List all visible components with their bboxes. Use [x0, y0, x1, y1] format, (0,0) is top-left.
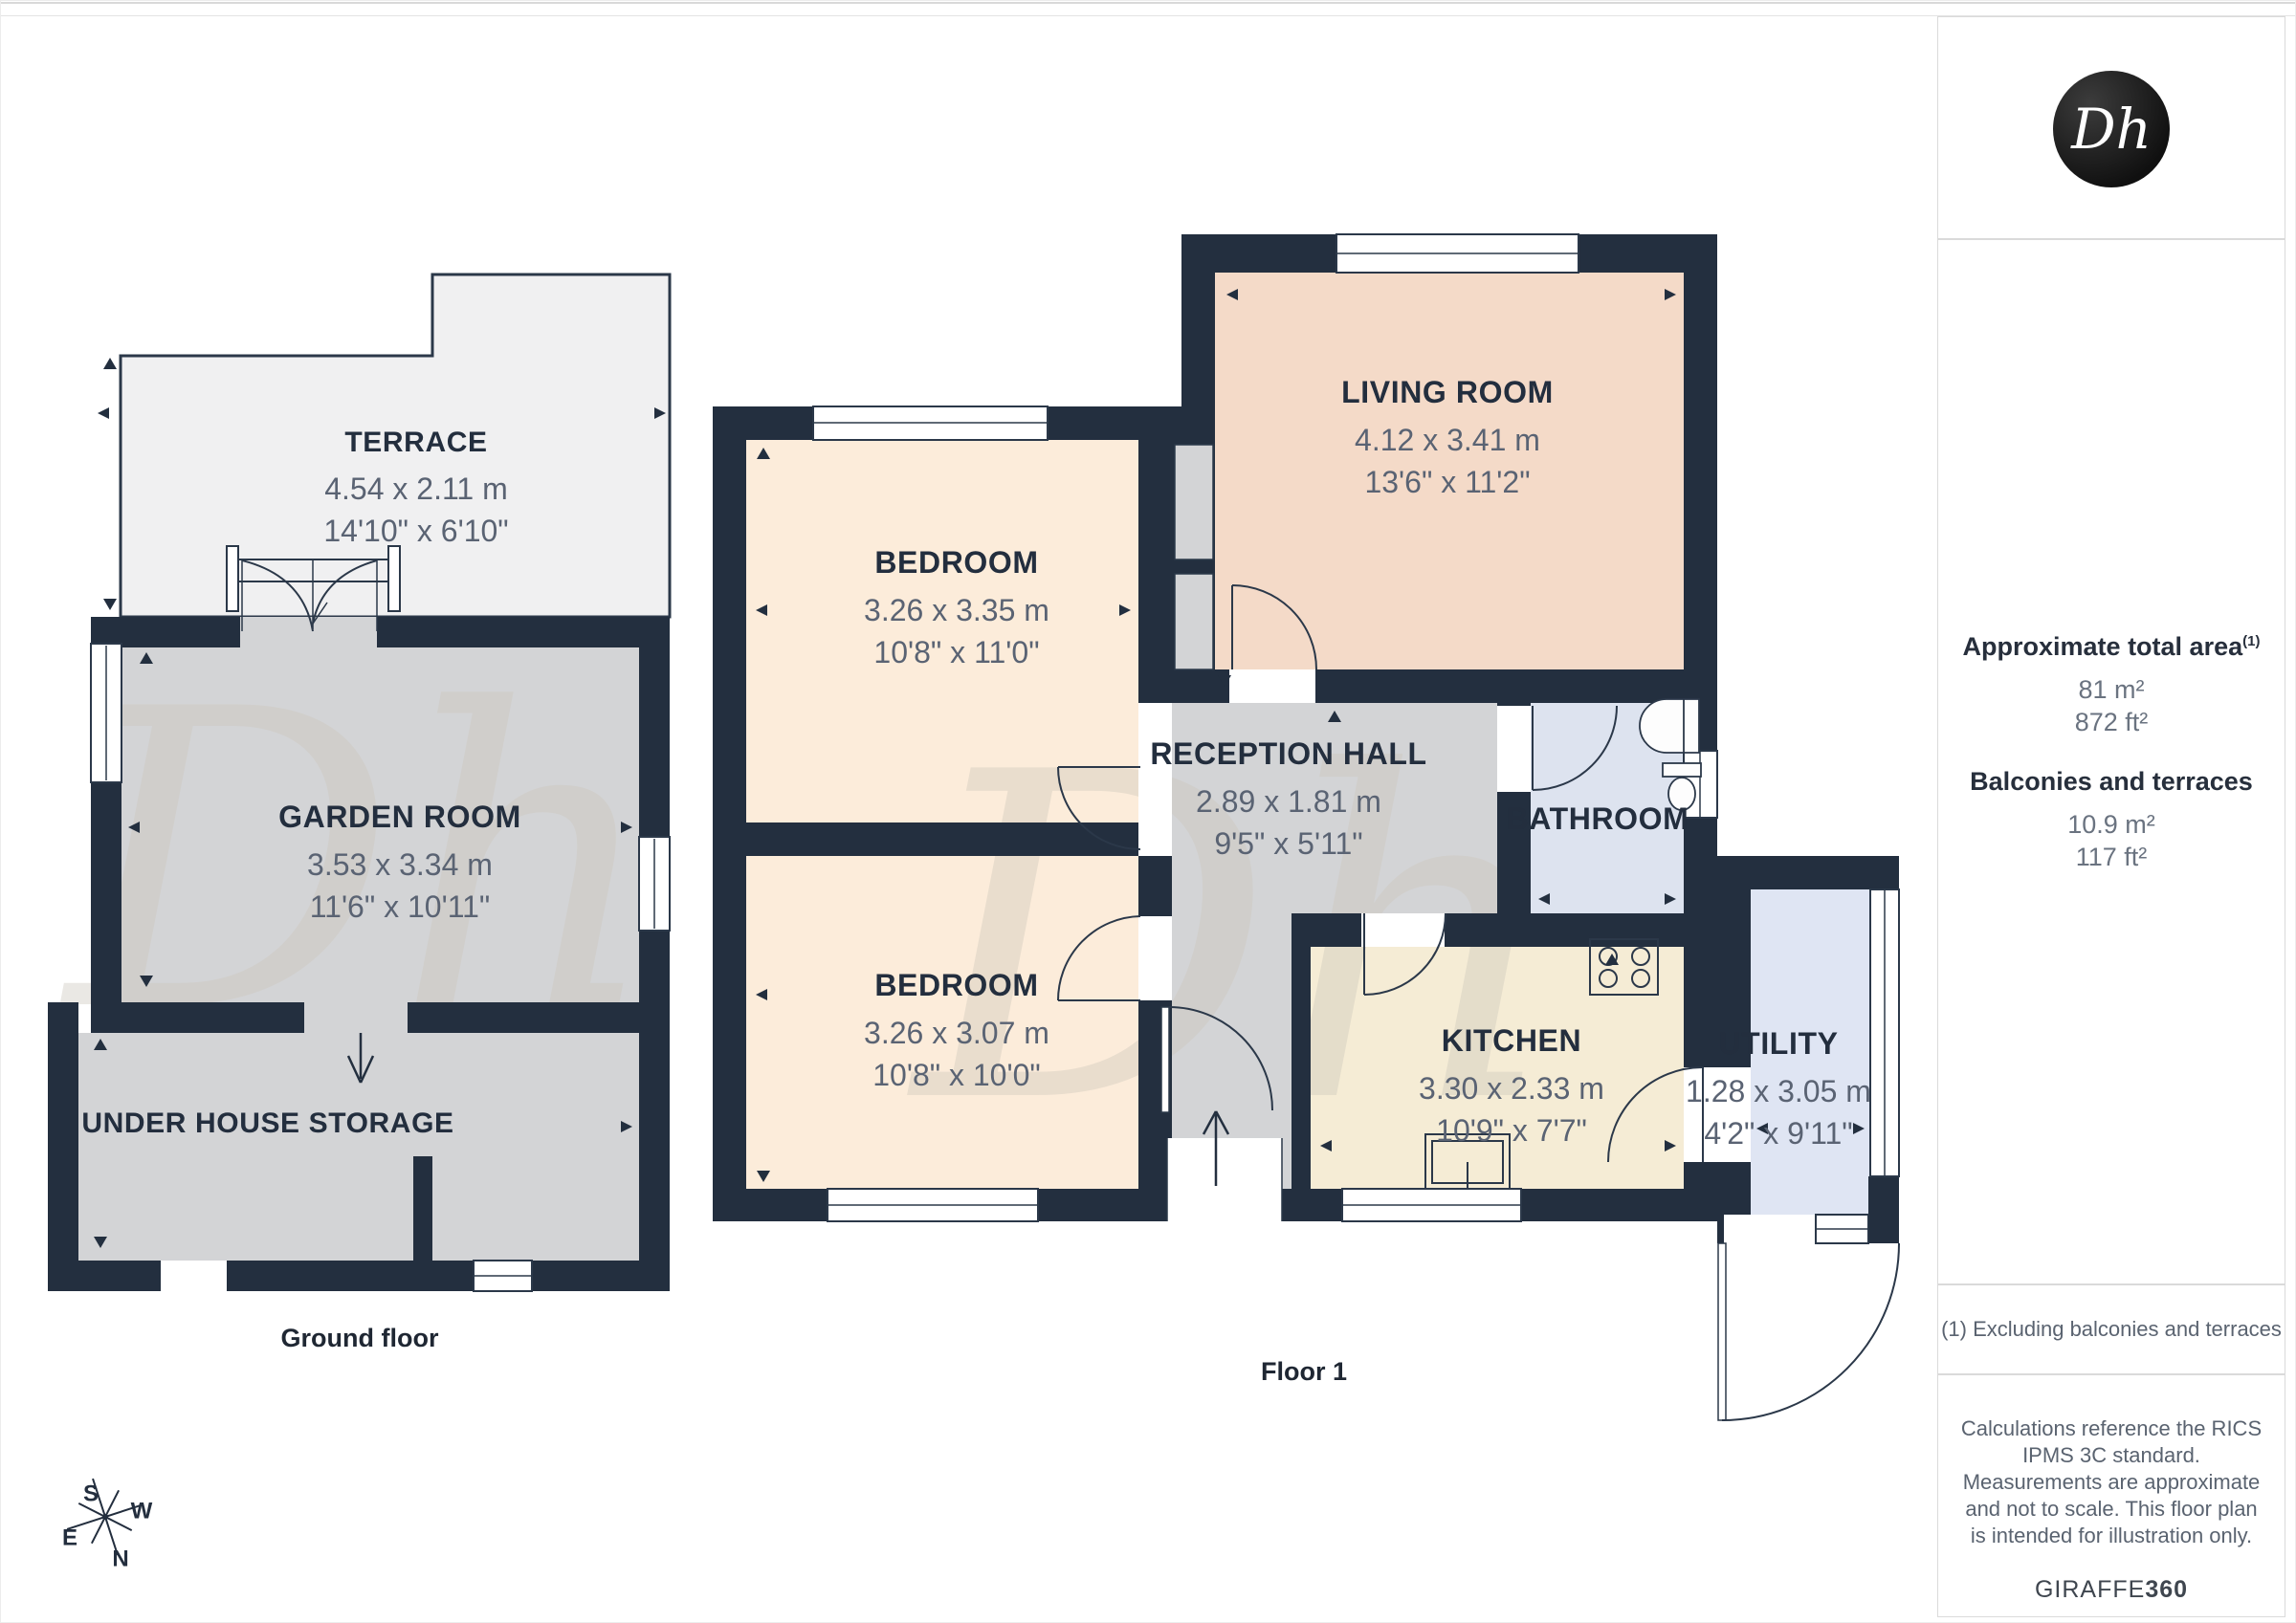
room-dim-metric: 2.89 x 1.81 m	[1150, 780, 1426, 822]
room-name: BEDROOM	[864, 968, 1049, 1003]
agency-logo: Dh	[2053, 71, 2170, 187]
room-name: LIVING ROOM	[1341, 375, 1554, 410]
room-name: GARDEN ROOM	[278, 800, 521, 835]
area-summary-box: Approximate total area(1) 81 m² 872 ft² …	[1937, 239, 2285, 1284]
room-name: TERRACE	[323, 427, 508, 459]
room-dim-imperial: 13'6" x 11'2"	[1341, 461, 1554, 503]
alcoves	[1175, 445, 1213, 669]
floorplan-first: Dh	[708, 230, 1913, 1492]
room-label-storage: UNDER HOUSE STORAGE	[81, 1108, 453, 1149]
caption-floor-1: Floor 1	[1261, 1357, 1347, 1387]
room-dim-metric: 3.26 x 3.07 m	[864, 1012, 1049, 1054]
compass-south: S	[83, 1481, 99, 1507]
room-dim-metric: 1.28 x 3.05 m	[1686, 1070, 1871, 1112]
room-dim-imperial: 9'5" x 5'11"	[1150, 822, 1426, 865]
room-name: BEDROOM	[864, 545, 1049, 581]
room-label-bedroom-a: BEDROOM 3.26 x 3.35 m 10'8" x 11'0"	[864, 545, 1049, 673]
total-area-imperial: 872 ft²	[1938, 706, 2285, 738]
caption-ground-floor: Ground floor	[281, 1324, 439, 1353]
compass-icon: S W E N	[36, 1452, 180, 1595]
room-dim-imperial: 10'8" x 10'0"	[864, 1054, 1049, 1096]
total-area-metric: 81 m²	[1938, 673, 2285, 706]
balconies-imperial: 117 ft²	[1938, 841, 2285, 873]
footnote-box: (1) Excluding balconies and terraces	[1937, 1284, 2285, 1374]
room-dim-metric: 4.12 x 3.41 m	[1341, 419, 1554, 461]
room-name: UNDER HOUSE STORAGE	[81, 1108, 453, 1140]
room-label-living-room: LIVING ROOM 4.12 x 3.41 m 13'6" x 11'2"	[1341, 375, 1554, 503]
room-name: BATHROOM	[1507, 801, 1689, 837]
top-divider-line	[0, 2, 2296, 4]
room-label-bathroom: BATHROOM	[1507, 801, 1689, 845]
room-dim-imperial: 4'2" x 9'11"	[1686, 1112, 1871, 1154]
room-label-kitchen: KITCHEN 3.30 x 2.33 m 10'9" x 7'7"	[1419, 1023, 1604, 1151]
compass-west: W	[131, 1499, 153, 1524]
total-area-heading: Approximate total area(1)	[1938, 632, 2285, 662]
room-dim-metric: 3.30 x 2.33 m	[1419, 1067, 1604, 1109]
room-name: UTILITY	[1686, 1026, 1871, 1062]
balconies-heading: Balconies and terraces	[1938, 767, 2285, 797]
balconies-metric: 10.9 m²	[1938, 808, 2285, 841]
room-dim-imperial: 11'6" x 10'11"	[278, 886, 521, 928]
bathtub-icon	[1640, 699, 1699, 753]
room-name: RECEPTION HALL	[1150, 736, 1426, 772]
room-dim-imperial: 14'10" x 6'10"	[323, 510, 508, 552]
room-dim-metric: 4.54 x 2.11 m	[323, 468, 508, 510]
giraffe360-logo: GIRAFFE360	[1938, 1576, 2285, 1604]
room-dim-imperial: 10'8" x 11'0"	[864, 631, 1049, 673]
agency-logo-text: Dh	[2071, 97, 2152, 162]
room-label-garden-room: GARDEN ROOM 3.53 x 3.34 m 11'6" x 10'11"	[278, 800, 521, 928]
room-dim-imperial: 10'9" x 7'7"	[1419, 1109, 1604, 1151]
floorplan-ground: Dh	[38, 268, 679, 1301]
room-label-terrace: TERRACE 4.54 x 2.11 m 14'10" x 6'10"	[323, 427, 508, 552]
footnote-text: (1) Excluding balconies and terraces	[1941, 1317, 2282, 1342]
room-label-utility: UTILITY 1.28 x 3.05 m 4'2" x 9'11"	[1686, 1026, 1871, 1154]
room-dim-metric: 3.26 x 3.35 m	[864, 589, 1049, 631]
disclaimer-text: Calculations reference the RICS IPMS 3C …	[1958, 1415, 2264, 1549]
room-label-bedroom-b: BEDROOM 3.26 x 3.07 m 10'8" x 10'0"	[864, 968, 1049, 1096]
room-dim-metric: 3.53 x 3.34 m	[278, 844, 521, 886]
disclaimer-box: Calculations reference the RICS IPMS 3C …	[1937, 1374, 2285, 1617]
compass-east: E	[62, 1525, 77, 1551]
room-label-reception-hall: RECEPTION HALL 2.89 x 1.81 m 9'5" x 5'11…	[1150, 736, 1426, 865]
logo-box: Dh	[1937, 16, 2285, 239]
footnote-marker: (1)	[2242, 633, 2260, 649]
room-name: KITCHEN	[1419, 1023, 1604, 1059]
compass-north: N	[112, 1546, 128, 1572]
